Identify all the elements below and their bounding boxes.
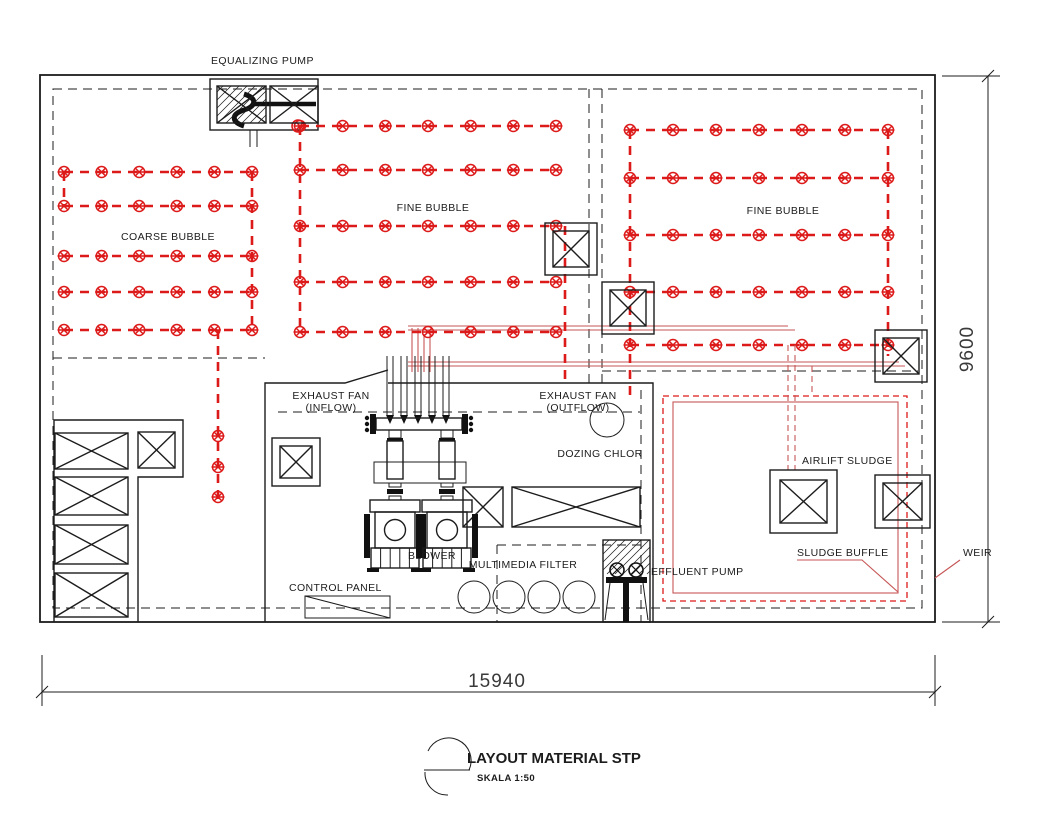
- dim-width-text: 15940: [468, 671, 526, 692]
- label-equalizing-pump: EQUALIZING PUMP: [211, 55, 314, 67]
- left-tank-structure: [54, 420, 183, 622]
- label-control-panel: CONTROL PANEL: [289, 582, 382, 594]
- label-exhaust-fan-outflow-2: (OUTFLOW): [546, 402, 609, 414]
- stp-layout-drawing: EQUALIZING PUMP FINE BUBBLE FINE BUBBLE …: [0, 0, 1054, 817]
- label-airlift-sludge: AIRLIFT SLUDGE: [802, 455, 893, 467]
- label-fine-bubble-right: FINE BUBBLE: [747, 205, 820, 217]
- dimension-height: 9600: [942, 70, 1000, 628]
- label-effluent-pump: EFFLUENT PUMP: [651, 566, 744, 578]
- drawing-title: LAYOUT MATERIAL STP: [467, 750, 641, 767]
- label-fine-bubble-left: FINE BUBBLE: [397, 202, 470, 214]
- label-exhaust-fan-inflow: EXHAUST FAN: [292, 390, 369, 402]
- drawing-canvas: EQUALIZING PUMP FINE BUBBLE FINE BUBBLE …: [0, 0, 1054, 817]
- dim-height-text: 9600: [957, 326, 978, 372]
- section-mark-icon: [428, 738, 471, 770]
- label-dozing-chlor: DOZING CHLOR: [557, 448, 642, 460]
- label-coarse-bubble: COARSE BUBBLE: [121, 231, 215, 243]
- label-multimedia-filter: MULTIMEDIA FILTER: [469, 559, 578, 571]
- effluent-pump: [603, 540, 650, 622]
- drawing-scale: SKALA 1:50: [477, 773, 535, 784]
- column-boxes: [55, 86, 930, 617]
- label-sludge-buffle: SLUDGE BUFFLE: [797, 547, 889, 559]
- label-exhaust-fan-inflow-2: (INFLOW): [305, 402, 356, 414]
- label-exhaust-fan-outflow: EXHAUST FAN: [539, 390, 616, 402]
- label-blower: BLOWER: [408, 550, 456, 562]
- plant-walls: [40, 75, 935, 622]
- dimension-width: 15940: [36, 655, 941, 706]
- title-block: LAYOUT MATERIAL STP SKALA 1:50: [424, 738, 641, 795]
- blower-assembly: [364, 356, 478, 572]
- control-panel: [305, 596, 390, 618]
